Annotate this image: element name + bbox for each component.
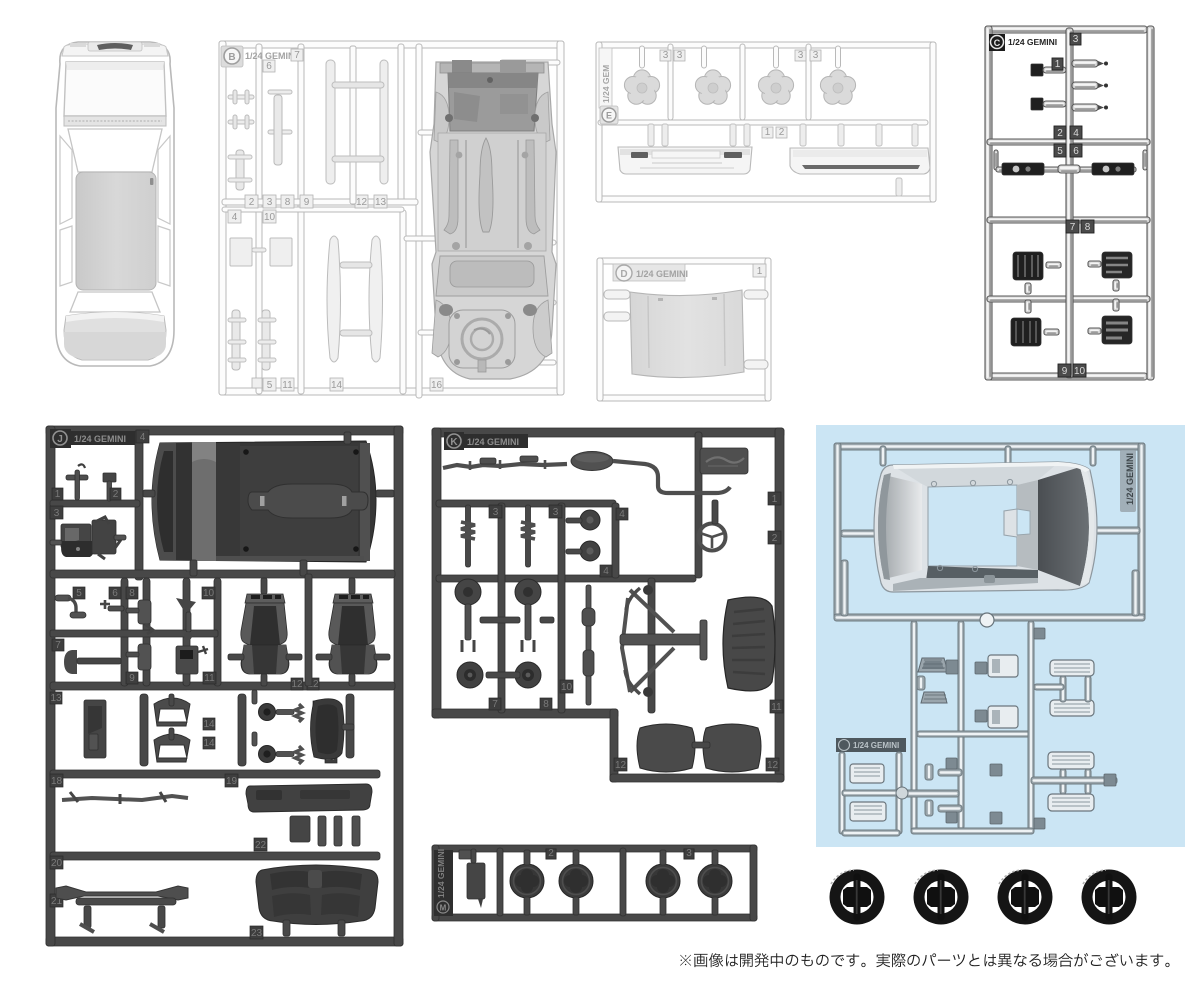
svg-text:4: 4 bbox=[619, 509, 625, 520]
svg-text:18: 18 bbox=[51, 776, 63, 787]
svg-text:2: 2 bbox=[548, 848, 554, 859]
svg-text:5: 5 bbox=[1057, 146, 1063, 157]
svg-text:6: 6 bbox=[1073, 146, 1079, 157]
svg-text:19: 19 bbox=[226, 776, 238, 787]
svg-text:1/24 GEMINI: 1/24 GEMINI bbox=[853, 741, 899, 750]
svg-text:2: 2 bbox=[1057, 128, 1063, 139]
svg-text:2: 2 bbox=[249, 197, 255, 208]
svg-text:4: 4 bbox=[1073, 128, 1079, 139]
svg-text:6: 6 bbox=[112, 588, 118, 599]
svg-text:1: 1 bbox=[757, 266, 763, 277]
svg-text:1/24 GEMINI: 1/24 GEMINI bbox=[1125, 453, 1135, 505]
svg-text:4: 4 bbox=[232, 212, 238, 223]
svg-text:6: 6 bbox=[266, 61, 272, 72]
svg-text:3: 3 bbox=[813, 50, 819, 61]
svg-text:1/24 GEM: 1/24 GEM bbox=[601, 65, 611, 103]
svg-text:14: 14 bbox=[331, 380, 343, 391]
svg-text:9: 9 bbox=[304, 197, 310, 208]
svg-text:14: 14 bbox=[203, 738, 215, 749]
svg-text:12: 12 bbox=[356, 197, 368, 208]
svg-text:3: 3 bbox=[54, 508, 60, 519]
svg-text:3: 3 bbox=[553, 507, 559, 518]
svg-text:11: 11 bbox=[771, 702, 782, 713]
svg-text:12: 12 bbox=[615, 760, 627, 771]
svg-text:20: 20 bbox=[51, 858, 63, 869]
svg-text:2: 2 bbox=[779, 127, 785, 138]
svg-text:10: 10 bbox=[561, 682, 573, 693]
svg-text:7: 7 bbox=[1070, 222, 1076, 233]
svg-text:5: 5 bbox=[267, 380, 273, 391]
svg-text:1/24 GEMINI: 1/24 GEMINI bbox=[636, 269, 688, 279]
svg-text:5: 5 bbox=[76, 588, 82, 599]
svg-text:9: 9 bbox=[129, 673, 135, 684]
svg-text:2: 2 bbox=[772, 533, 778, 544]
svg-text:1/24 GEMINI: 1/24 GEMINI bbox=[1008, 37, 1057, 47]
svg-text:7: 7 bbox=[492, 699, 498, 710]
svg-text:14: 14 bbox=[203, 719, 215, 730]
svg-text:2: 2 bbox=[113, 489, 119, 500]
svg-text:8: 8 bbox=[285, 197, 291, 208]
svg-text:4: 4 bbox=[603, 566, 609, 577]
svg-text:1/24 GEMINI: 1/24 GEMINI bbox=[245, 51, 297, 61]
svg-text:1/24 GEMINI: 1/24 GEMINI bbox=[467, 437, 519, 447]
svg-text:D: D bbox=[620, 269, 627, 280]
svg-text:3: 3 bbox=[493, 507, 499, 518]
svg-text:10: 10 bbox=[1074, 366, 1086, 377]
svg-text:M: M bbox=[440, 904, 447, 913]
svg-text:12: 12 bbox=[291, 679, 303, 690]
svg-text:11: 11 bbox=[282, 380, 293, 391]
svg-text:11: 11 bbox=[204, 673, 215, 684]
svg-text:4: 4 bbox=[140, 432, 146, 443]
svg-text:E: E bbox=[606, 111, 612, 121]
svg-text:C: C bbox=[994, 38, 1001, 48]
svg-text:16: 16 bbox=[431, 380, 443, 391]
svg-text:1: 1 bbox=[772, 494, 778, 505]
svg-text:23: 23 bbox=[251, 928, 263, 939]
svg-text:9: 9 bbox=[1062, 366, 1068, 377]
svg-text:8: 8 bbox=[1085, 222, 1091, 233]
svg-text:10: 10 bbox=[203, 588, 215, 599]
svg-text:3: 3 bbox=[663, 50, 669, 61]
svg-text:8: 8 bbox=[129, 588, 135, 599]
svg-text:7: 7 bbox=[55, 640, 61, 651]
svg-text:7: 7 bbox=[294, 50, 300, 61]
svg-text:8: 8 bbox=[543, 699, 549, 710]
svg-text:B: B bbox=[228, 52, 235, 63]
svg-text:1: 1 bbox=[55, 489, 61, 500]
svg-text:13: 13 bbox=[50, 693, 62, 704]
svg-text:22: 22 bbox=[255, 840, 267, 851]
svg-text:3: 3 bbox=[267, 197, 273, 208]
svg-text:3: 3 bbox=[677, 50, 683, 61]
svg-text:1/24 GEMINI: 1/24 GEMINI bbox=[74, 434, 126, 444]
svg-text:1/24 GEMINI: 1/24 GEMINI bbox=[436, 849, 446, 898]
svg-text:3: 3 bbox=[798, 50, 804, 61]
svg-text:10: 10 bbox=[264, 212, 276, 223]
svg-text:1: 1 bbox=[1055, 59, 1061, 70]
svg-text:3: 3 bbox=[686, 848, 692, 859]
svg-text:1: 1 bbox=[765, 127, 771, 138]
svg-text:12: 12 bbox=[767, 760, 779, 771]
svg-text:13: 13 bbox=[375, 197, 387, 208]
svg-text:K: K bbox=[450, 437, 458, 448]
svg-text:J: J bbox=[57, 434, 63, 445]
svg-text:3: 3 bbox=[1073, 34, 1079, 45]
